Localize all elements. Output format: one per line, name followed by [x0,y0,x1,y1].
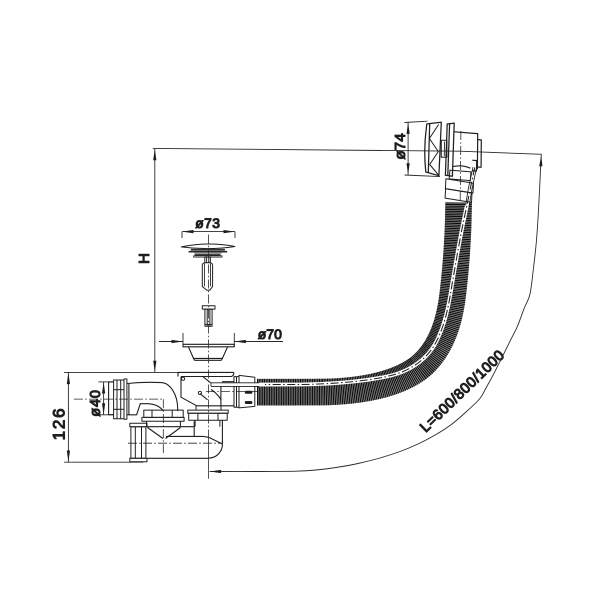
svg-text:ø40: ø40 [88,389,104,416]
svg-text:ø73: ø73 [195,216,220,231]
svg-text:ø70: ø70 [258,326,282,342]
svg-text:126: 126 [50,407,69,441]
svg-text:ø74: ø74 [392,133,409,160]
svg-text:H: H [136,253,153,264]
